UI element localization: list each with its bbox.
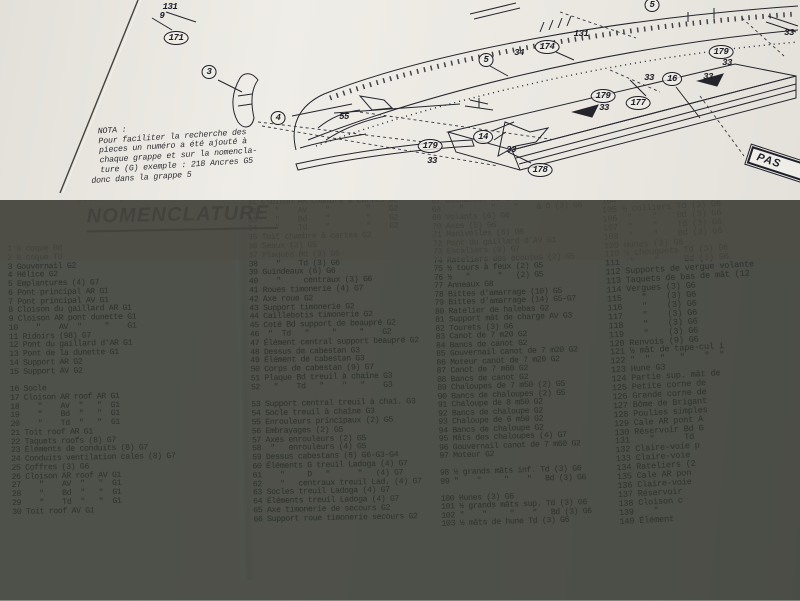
part-callout-179: 179 — [591, 89, 616, 103]
part-callout-177: 177 — [626, 96, 651, 110]
part-callout-33: 33 — [599, 103, 609, 113]
part-callout-5: 5 — [479, 53, 494, 67]
part-callout-33: 33 — [427, 156, 437, 166]
part-callout-3: 3 — [202, 65, 217, 79]
part-callout-55: 55 — [339, 112, 349, 122]
part-callout-33: 33 — [703, 72, 713, 82]
plate-label: PAS — [755, 151, 782, 170]
part-callout-179: 179 — [709, 45, 734, 59]
nota-block: NOTA : Pour faciliter la recherche des p… — [88, 117, 259, 186]
part-callout-171: 171 — [164, 31, 189, 45]
part-callout-33: 33 — [722, 58, 732, 68]
part-callout-178: 178 — [528, 163, 553, 177]
part-callout-33: 33 — [506, 145, 516, 155]
part-callout-131: 131 — [163, 2, 178, 12]
part-callout-34: 34 — [514, 48, 524, 58]
part-callout-33: 33 — [784, 28, 794, 38]
part-callout-5: 5 — [645, 0, 660, 12]
part-callout-14: 14 — [473, 130, 493, 144]
photo-of-instruction-sheets: { "photo": { "mat_color": "#36b2d4", "ta… — [0, 0, 800, 600]
part-callout-9: 9 — [160, 11, 165, 21]
part-callout-33: 33 — [644, 73, 654, 83]
part-callout-174: 174 — [535, 40, 560, 54]
part-callout-131: 131 — [574, 29, 589, 39]
part-callout-179: 179 — [418, 139, 443, 153]
part-callout-4: 4 — [271, 111, 286, 125]
part-callout-16: 16 — [662, 72, 682, 86]
